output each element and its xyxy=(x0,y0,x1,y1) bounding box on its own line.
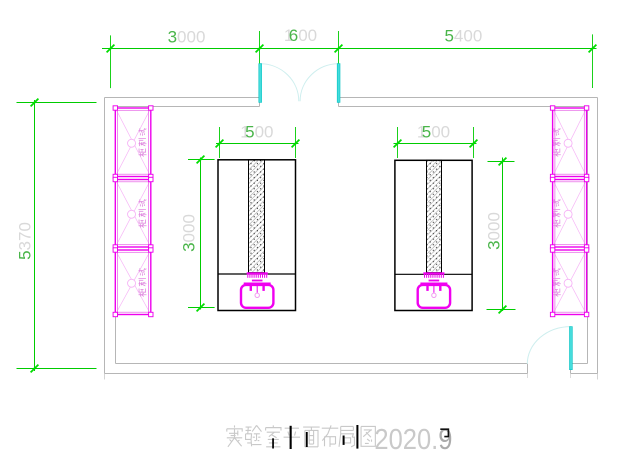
svg-text:0: 0 xyxy=(308,26,317,45)
svg-text:5: 5 xyxy=(245,122,254,141)
svg-text:5: 5 xyxy=(422,123,431,142)
svg-text:4: 4 xyxy=(454,26,463,45)
svg-text:0: 0 xyxy=(16,222,35,231)
svg-text:0: 0 xyxy=(177,27,186,46)
svg-text:0: 0 xyxy=(485,231,504,240)
svg-text:3: 3 xyxy=(16,241,35,250)
svg-text:5: 5 xyxy=(445,26,454,45)
svg-text:2020.9: 2020.9 xyxy=(374,422,452,455)
svg-text:0: 0 xyxy=(485,222,504,231)
svg-text:3: 3 xyxy=(180,242,199,251)
svg-text:5: 5 xyxy=(16,250,35,259)
svg-text:0: 0 xyxy=(441,123,450,142)
svg-text:0: 0 xyxy=(180,224,199,233)
svg-text:3: 3 xyxy=(168,27,177,46)
svg-text:0: 0 xyxy=(264,122,273,141)
svg-text:0: 0 xyxy=(431,123,440,142)
svg-text:0: 0 xyxy=(180,214,199,223)
svg-text:0: 0 xyxy=(298,26,307,45)
svg-text:0: 0 xyxy=(187,27,196,46)
svg-text:0: 0 xyxy=(473,26,482,45)
svg-text:0: 0 xyxy=(180,233,199,242)
svg-text:0: 0 xyxy=(196,27,205,46)
svg-text:7: 7 xyxy=(16,232,35,241)
svg-text:0: 0 xyxy=(485,212,504,221)
svg-text:6: 6 xyxy=(289,26,298,45)
svg-text:3: 3 xyxy=(485,240,504,249)
svg-text:0: 0 xyxy=(255,122,264,141)
svg-text:0: 0 xyxy=(463,26,472,45)
